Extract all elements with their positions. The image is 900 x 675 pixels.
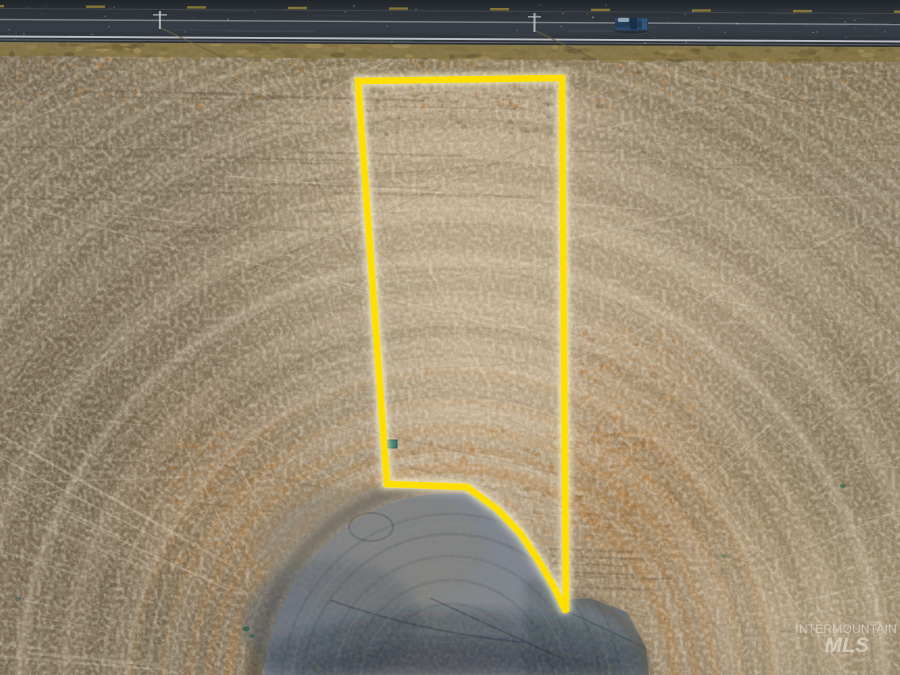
svg-text:MLS: MLS bbox=[825, 634, 869, 657]
